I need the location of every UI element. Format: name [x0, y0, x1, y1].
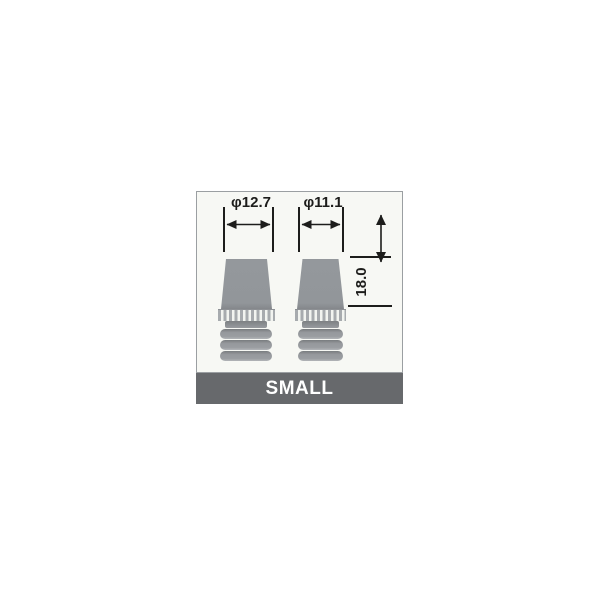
- plug-cone: [297, 259, 344, 309]
- extension-line: [342, 207, 344, 252]
- dimension-label-height: 18.0: [353, 260, 369, 304]
- dimension-label-right-diameter: φ11.1: [283, 194, 363, 211]
- plug-ribs: [298, 321, 343, 361]
- extension-line: [272, 207, 274, 252]
- plug-rib: [220, 351, 272, 361]
- plug-knurl-band: [295, 309, 346, 321]
- plug-ribs: [220, 321, 272, 361]
- horizontal-double-arrow-icon: [301, 218, 341, 231]
- plug-collar: [302, 321, 339, 328]
- extension-line: [298, 207, 300, 252]
- extension-line: [350, 256, 391, 258]
- plug-rib: [298, 329, 343, 339]
- plug-cone: [221, 259, 272, 309]
- plug-rib: [220, 329, 272, 339]
- plug-rib: [298, 340, 343, 350]
- product-size-figure: φ12.7 φ11.1 18.0: [196, 191, 403, 404]
- diagram-panel: φ12.7 φ11.1 18.0: [196, 191, 403, 373]
- size-banner: SMALL: [196, 373, 403, 404]
- extension-line: [223, 207, 225, 252]
- plug-rib: [220, 340, 272, 350]
- dimension-label-left-diameter: φ12.7: [211, 194, 291, 211]
- plug-knurl-band: [218, 309, 275, 321]
- extension-line: [348, 305, 392, 307]
- plug-rib: [298, 351, 343, 361]
- size-banner-label: SMALL: [196, 373, 403, 404]
- horizontal-double-arrow-icon: [226, 218, 271, 231]
- plug-collar: [225, 321, 267, 328]
